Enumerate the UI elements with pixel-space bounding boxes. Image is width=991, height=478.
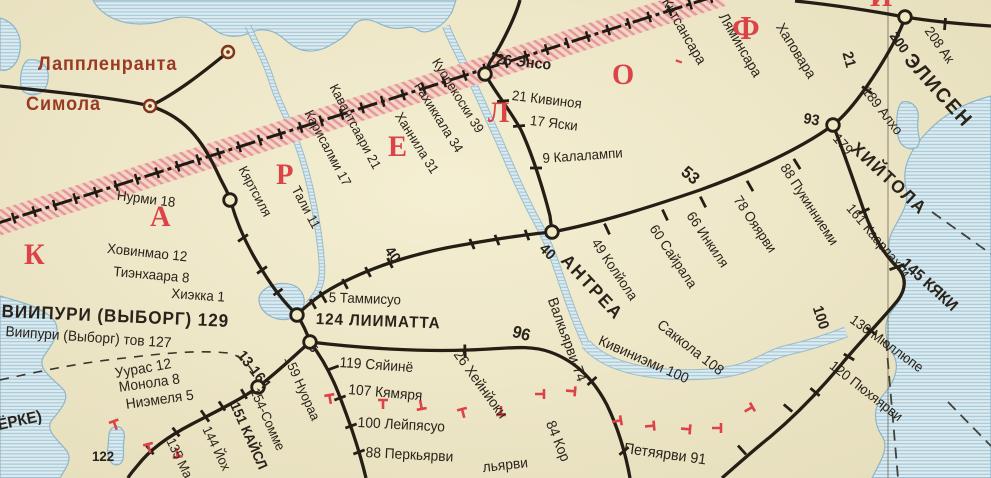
label-km40b: 40 [536, 241, 558, 263]
label-kyartsilya: Кяртсиля [236, 164, 274, 219]
label-syaine: 119 Сяйинё [339, 356, 414, 376]
label-johannes: 144 Йох [200, 424, 233, 473]
label-hovinmaa: Ховинмао 12 [107, 241, 188, 263]
label-km53: 53 [678, 163, 703, 188]
label-122: 122 [92, 449, 114, 463]
label-13-164: 13 164 [234, 348, 273, 392]
label-liimatta: 124 ЛИИМАТТА [315, 312, 440, 332]
label-makslahti: 135 Ма [164, 436, 195, 478]
label-kivinoya: 21 Кивиноя [511, 88, 582, 110]
label-km100: 100 [810, 304, 832, 331]
label-km200: 200 [888, 29, 912, 55]
label-region-hyphen: - [671, 46, 688, 73]
label-inkilya: 66 Инкиля [684, 209, 731, 270]
label-tali: Тали 11 [289, 184, 322, 231]
label-lappeenranta: Лаппленранта [38, 55, 177, 74]
label-kalalampi: 9 Калалампи [542, 145, 623, 165]
label-region-a: А [150, 202, 171, 232]
label-alho: 189 Алхо [860, 84, 906, 137]
label-region-k: К [24, 240, 45, 270]
label-heinjoki: 26 Хейнйоки [450, 348, 509, 422]
label-km40a: 40 [382, 244, 403, 266]
label-tammisuo: 5 Таммисуо [329, 290, 402, 307]
label-km96: 96 [511, 323, 533, 344]
map-labels-layer: ЛаппленрантаСимолаНурми 18Ховинмао 12Тиэ… [0, 0, 991, 478]
label-petyayarvi: Петяярви 91 [623, 441, 707, 467]
label-region-e: Е [388, 132, 407, 162]
label-oyayarvi: 78 Ояярви [731, 193, 779, 255]
label-bjorke: (БЬЁРКЕ) [0, 409, 43, 440]
label-pyuhyayarvi: 120 Пюхяярви [827, 358, 905, 423]
label-region-i: И [870, 0, 892, 12]
label-km93: 93 [802, 111, 820, 129]
label-myullyupelto: 130 Мюллюпе [848, 312, 926, 374]
label-km21: 21 [840, 50, 859, 69]
label-valkyarvi: Валкьярви-74 [544, 296, 588, 384]
label-perkyarvi: 88 Перкьярви [365, 446, 453, 465]
map-canvas: ЛаппленрантаСимолаНурми 18Ховинмао 12Тиэ… [0, 0, 991, 478]
label-viipuri-tov: Виипури (Выборг) тов 127 [5, 325, 172, 351]
label-hapovara: Хаповара [773, 21, 818, 81]
label-simola: Симола [26, 95, 101, 114]
label-kyamyarya: 107 Кямяря [348, 383, 423, 404]
label-leipyasuo: 100 Лейпясуо [357, 416, 445, 435]
label-tienhaara: Тиэнхаара 8 [113, 264, 190, 285]
label-kyakisalmi: 145 КЯКИ [897, 256, 960, 315]
label-84kor-partial: 84 Кор [543, 419, 572, 464]
label-yaski: 17 Яски [529, 113, 578, 133]
label-208ak-partial: 208 Ак [923, 24, 958, 65]
label-enso: 26 Энсо [495, 52, 551, 73]
label-region-r: Р [276, 160, 293, 190]
label-lyarvi-partial: льярви [482, 456, 529, 475]
label-sairala: 60 Сайрала [647, 222, 699, 290]
label-hiekka: Хиэкка 1 [171, 286, 225, 304]
label-km5: 5 [307, 342, 320, 355]
label-region-o: О [612, 60, 634, 90]
label-pukinniemi: 88 Пукинниеми [778, 161, 841, 247]
label-nuoraa: 159 Нуораа [282, 354, 322, 423]
label-elisenvaara: ЭЛИСЕН [900, 50, 976, 131]
label-region-f: Ф [732, 12, 760, 46]
label-region-l: Л [488, 98, 509, 128]
